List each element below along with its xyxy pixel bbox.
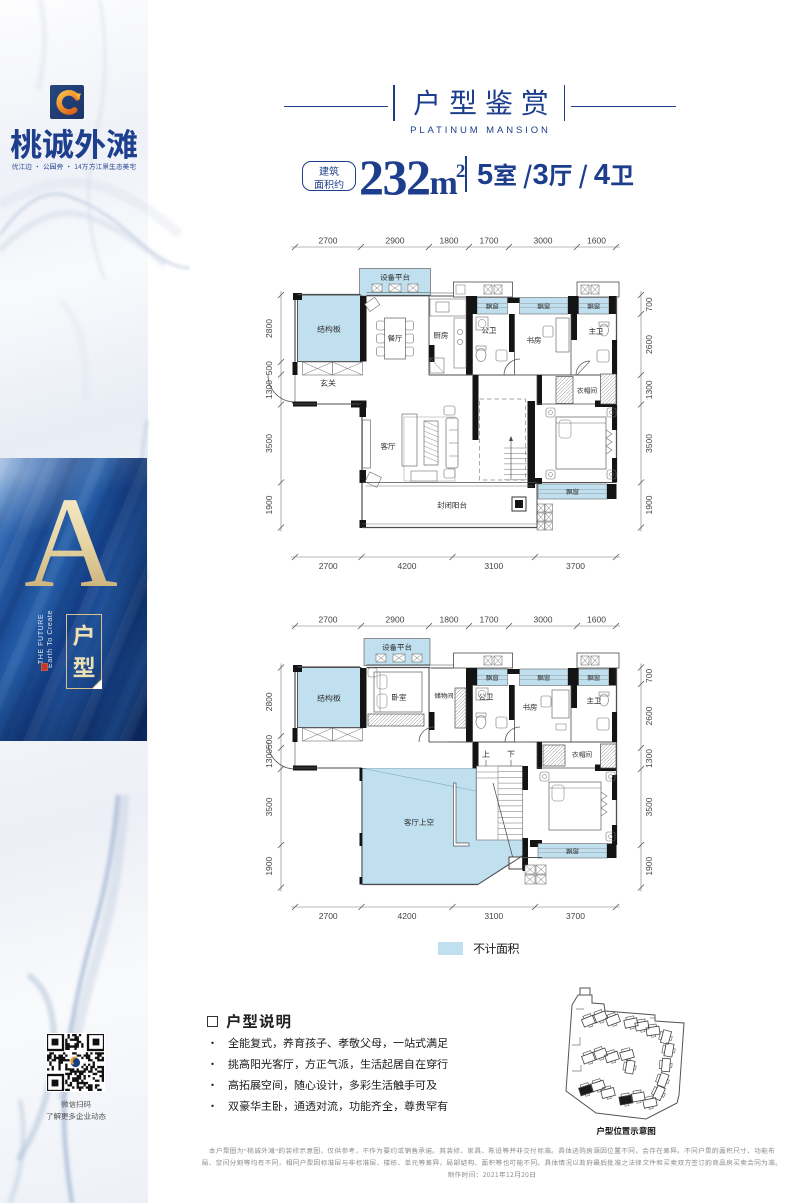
svg-text:1800: 1800 [440,236,459,246]
svg-text:3500: 3500 [644,434,654,453]
svg-text:2700: 2700 [319,236,338,246]
svg-text:2600: 2600 [644,706,654,725]
svg-text:700: 700 [644,297,654,311]
svg-text:3100: 3100 [484,911,503,921]
svg-text:卧室: 卧室 [392,692,407,703]
svg-text:500: 500 [264,735,274,749]
svg-text:4200: 4200 [398,561,417,571]
svg-text:3500: 3500 [264,434,274,453]
svg-text:厨房: 厨房 [434,330,449,341]
svg-text:1300: 1300 [644,380,654,399]
svg-text:1700: 1700 [480,236,499,246]
svg-text:3700: 3700 [566,561,585,571]
svg-text:玄关: 玄关 [320,378,337,389]
svg-text:飘窗: 飘窗 [566,486,579,496]
svg-text:3000: 3000 [534,236,553,246]
svg-text:2700: 2700 [319,561,338,571]
svg-text:衣帽间: 衣帽间 [571,749,593,759]
svg-text:3500: 3500 [644,797,654,816]
svg-text:1300: 1300 [644,749,654,768]
svg-text:2700: 2700 [319,615,338,625]
svg-text:500: 500 [264,361,274,375]
svg-text:2600: 2600 [644,335,654,354]
svg-text:书房: 书房 [523,702,538,713]
svg-text:飘窗: 飘窗 [566,845,579,855]
svg-text:1600: 1600 [587,615,606,625]
svg-text:1800: 1800 [440,615,459,625]
svg-text:设备平台: 设备平台 [382,642,412,653]
svg-text:4200: 4200 [398,911,417,921]
svg-text:1900: 1900 [264,856,274,875]
svg-text:飘窗: 飘窗 [587,672,600,682]
svg-text:设备平台: 设备平台 [380,272,410,283]
svg-text:2900: 2900 [386,615,405,625]
svg-text:1700: 1700 [480,615,499,625]
svg-text:1600: 1600 [587,236,606,246]
svg-text:3700: 3700 [566,911,585,921]
svg-text:1900: 1900 [264,495,274,514]
svg-text:上: 上 [482,749,490,760]
svg-text:客厅上空: 客厅上空 [404,817,434,828]
svg-text:1900: 1900 [644,856,654,875]
svg-text:飘窗: 飘窗 [587,300,600,310]
svg-text:1300: 1300 [264,749,274,768]
svg-text:公卫: 公卫 [482,325,497,336]
svg-text:飘窗: 飘窗 [537,672,550,682]
svg-text:飘窗: 飘窗 [486,300,499,310]
svg-text:衣帽间: 衣帽间 [576,385,598,395]
svg-text:1900: 1900 [644,495,654,514]
svg-text:飘窗: 飘窗 [537,300,550,310]
svg-text:700: 700 [644,668,654,682]
svg-text:2700: 2700 [319,911,338,921]
svg-text:公卫: 公卫 [479,692,494,703]
svg-text:2800: 2800 [264,692,274,711]
svg-text:储物间: 储物间 [434,690,454,700]
svg-text:3500: 3500 [264,797,274,816]
svg-text:下: 下 [507,749,515,760]
svg-text:结构板: 结构板 [316,324,341,335]
svg-text:封闭阳台: 封闭阳台 [437,500,467,511]
svg-text:3000: 3000 [534,615,553,625]
svg-text:飘窗: 飘窗 [486,672,499,682]
svg-text:书房: 书房 [527,335,542,346]
svg-text:2800: 2800 [264,319,274,338]
svg-text:结构板: 结构板 [316,693,341,704]
svg-text:2900: 2900 [386,236,405,246]
svg-text:3100: 3100 [484,561,503,571]
svg-text:客厅: 客厅 [381,441,396,452]
svg-text:餐厅: 餐厅 [388,333,403,344]
